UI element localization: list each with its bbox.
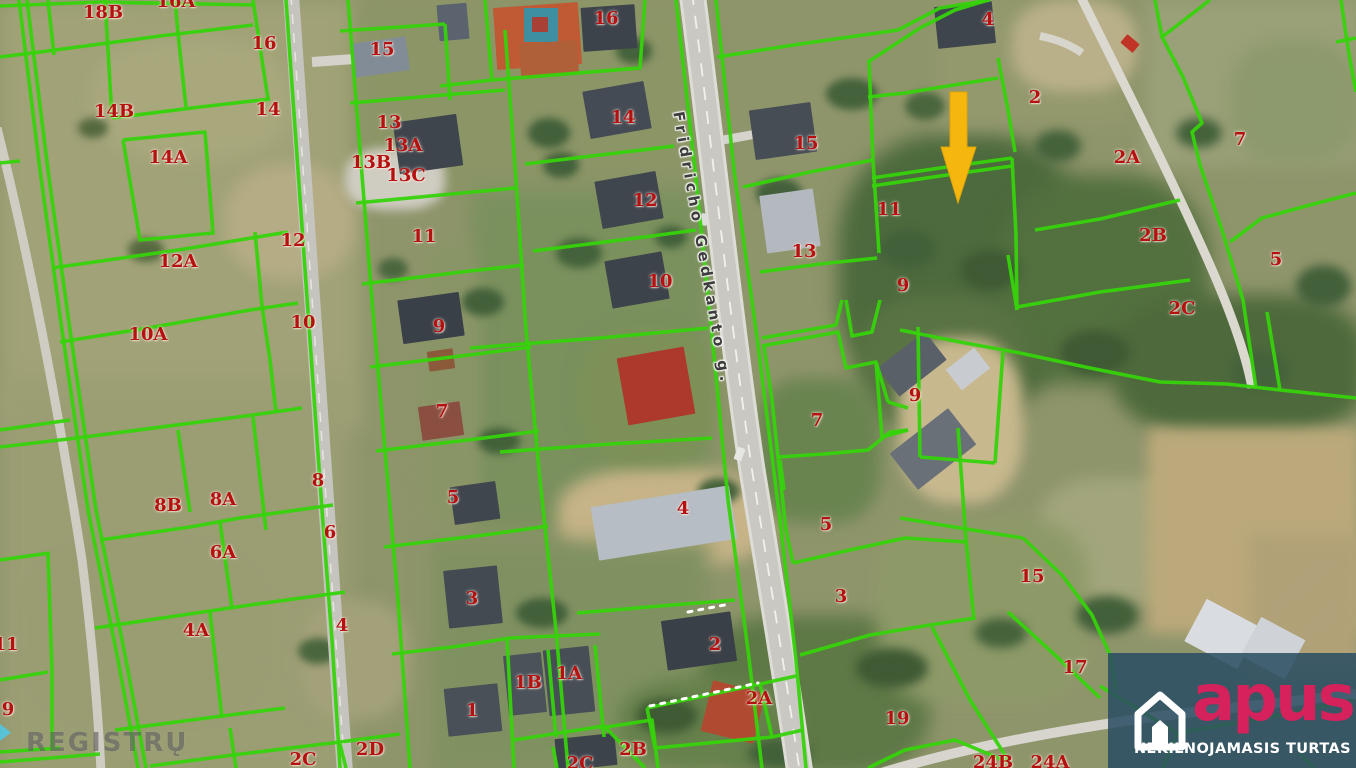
brand-tagline: NEKILNOJAMASIS TURTAS	[1134, 741, 1351, 757]
parcel-number-label: 2	[709, 636, 722, 654]
parcel-number-label: 2D	[356, 741, 384, 759]
parcel-number-label: 2	[1029, 89, 1042, 107]
parcel-number-label: 3	[835, 588, 848, 606]
parcel-number-label: 11	[876, 201, 901, 219]
parcel-number-label: 2B	[1139, 227, 1167, 245]
parcel-number-label: 5	[1270, 251, 1283, 269]
parcel-number-label: 16	[251, 35, 276, 53]
parcel-number-label: 2C	[567, 755, 594, 768]
parcel-number-label: 2C	[290, 751, 317, 768]
parcel-number-label: 4	[982, 11, 995, 29]
parcel-number-label: 10	[647, 273, 672, 291]
parcel-number-label: 13B	[351, 154, 391, 172]
parcel-number-label: 19	[884, 710, 909, 728]
parcel-number-label: 1	[466, 702, 479, 720]
parcel-number-label: 17	[1062, 659, 1087, 677]
parcel-number-label: 7	[1234, 131, 1247, 149]
parcel-number-label: 5	[820, 516, 833, 534]
brand-logo-overlay: apus NEKILNOJAMASIS TURTAS	[1108, 653, 1356, 768]
map-canvas[interactable]: 18B16A1614B1414A151313A13B13C1614121212A…	[0, 0, 1356, 768]
parcel-number-label: 12	[280, 232, 305, 250]
parcel-number-label: 14A	[148, 149, 187, 167]
brand-name: apus	[1192, 667, 1353, 731]
parcel-number-label: 11	[0, 636, 19, 654]
parcel-number-label: 24A	[1030, 754, 1069, 768]
parcel-number-label: 13C	[386, 167, 425, 185]
parcel-number-label: 24B	[973, 754, 1013, 768]
parcel-number-label: 9	[909, 387, 922, 405]
parcel-number-label: 6	[324, 524, 337, 542]
parcel-number-label: 14	[255, 101, 280, 119]
parcel-number-label: 2C	[1169, 300, 1196, 318]
parcel-number-label: 1B	[514, 674, 542, 692]
parcel-number-label: 16	[593, 10, 618, 28]
parcel-number-label: 11	[411, 228, 436, 246]
parcel-number-label: 2A	[1114, 149, 1141, 167]
parcel-number-label: 15	[1019, 568, 1044, 586]
parcel-number-label: 8	[312, 472, 325, 490]
parcel-number-label: 14B	[94, 103, 134, 121]
parcel-number-label: 2B	[619, 741, 647, 759]
registry-watermark: REGISTRŲ	[26, 728, 188, 758]
parcel-number-label: 14	[610, 109, 635, 127]
parcel-number-label: 3	[466, 590, 479, 608]
parcel-number-label: 4	[677, 500, 690, 518]
parcel-number-label: 12A	[158, 253, 197, 271]
parcel-number-label: 12	[632, 192, 657, 210]
parcel-number-label: 15	[793, 135, 818, 153]
parcel-number-label: 10A	[128, 326, 167, 344]
parcel-number-label: 13	[791, 243, 816, 261]
parcel-number-label: 5	[447, 489, 460, 507]
parcel-number-label: 16A	[156, 0, 195, 11]
parcel-number-label: 7	[811, 412, 824, 430]
parcel-number-label: 8A	[210, 491, 237, 509]
parcel-number-label: 9	[897, 277, 910, 295]
parcel-number-label: 9	[433, 318, 446, 336]
parcel-number-label: 1A	[556, 665, 583, 683]
parcel-number-label: 4A	[183, 622, 210, 640]
parcel-number-label: 10	[290, 314, 315, 332]
parcel-number-label: 2A	[746, 690, 773, 708]
parcel-number-label: 18B	[83, 4, 123, 22]
parcel-number-label: 9	[2, 701, 15, 719]
parcel-number-label: 13	[376, 114, 401, 132]
parcel-number-label: 4	[336, 617, 349, 635]
parcel-number-label: 6A	[210, 544, 237, 562]
parcel-number-label: 8B	[154, 497, 182, 515]
parcel-number-label: 7	[436, 403, 449, 421]
parcel-number-label: 15	[369, 41, 394, 59]
